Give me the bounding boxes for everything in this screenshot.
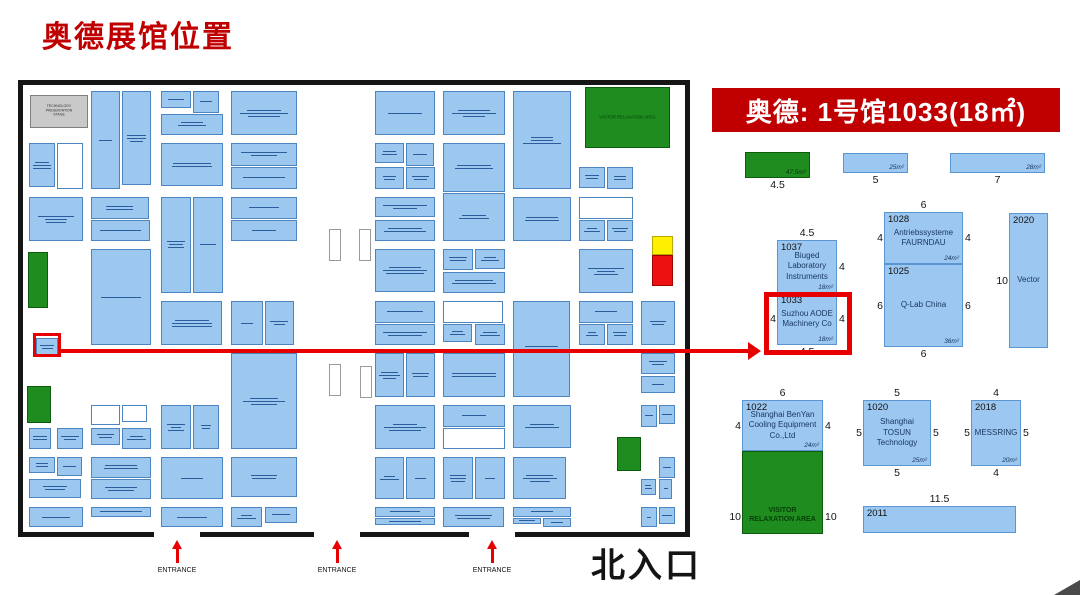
map-booth	[29, 197, 83, 241]
booth-2018: 2018MESSRING20m²4455	[971, 400, 1021, 466]
map-booth	[91, 91, 120, 189]
dim-top: 11.5	[930, 493, 950, 505]
map-booth	[641, 301, 675, 345]
dim-right: 5	[933, 427, 939, 439]
booth-name: Vector	[1010, 214, 1047, 347]
map-booth	[231, 197, 297, 219]
map-booth	[57, 428, 83, 450]
dim-right: 5	[1023, 427, 1029, 439]
booth-area: 36m²	[944, 338, 959, 345]
entrance-arrow-icon	[336, 548, 339, 563]
map-booth	[375, 301, 435, 323]
map-booth	[443, 301, 503, 323]
wall-gap	[469, 530, 515, 539]
map-booth	[443, 428, 505, 450]
technology-presentation-stage: TECHNOLOGY PRESENTATION STAGE	[30, 95, 88, 128]
pillar	[329, 364, 341, 396]
dim-bottom: 5	[894, 467, 900, 479]
map-booth	[375, 353, 404, 397]
entrance-label: ENTRANCE	[297, 567, 377, 574]
booth-number: 1022	[746, 402, 767, 413]
entrance-label: ENTRANCE	[137, 567, 217, 574]
map-booth	[641, 376, 675, 393]
dim-left: 5	[848, 427, 862, 439]
map-booth	[659, 405, 675, 424]
dim-bottom: 4	[993, 467, 999, 479]
map-booth	[91, 249, 151, 345]
booth-name: Q-Lab China	[885, 265, 962, 346]
page-title: 奥德展馆位置	[42, 12, 234, 56]
booth-number: 2018	[975, 402, 996, 413]
dim-top: 4	[993, 387, 999, 399]
booth-1037: 1037Biuged Laboratory Instruments18m²4.5…	[777, 240, 837, 293]
map-booth	[161, 457, 223, 499]
map-booth	[579, 220, 605, 242]
map-booth	[161, 405, 191, 449]
booth-2011: 201111.5	[863, 506, 1016, 533]
booth-area: 28m²	[1026, 164, 1041, 171]
dim-right: 4	[965, 232, 971, 244]
green-area-bottom-left	[27, 386, 51, 423]
pillar	[359, 229, 371, 261]
dim-top: 5	[894, 387, 900, 399]
map-booth	[91, 457, 151, 478]
map-booth	[161, 507, 223, 527]
map-booth	[443, 272, 505, 294]
locator-arrow-head-icon	[748, 342, 761, 360]
map-booth	[443, 457, 473, 499]
map-booth	[193, 405, 219, 449]
booth-area: 47.5m²	[786, 169, 806, 176]
dim-right: 10	[825, 511, 837, 523]
map-booth	[406, 143, 434, 166]
map-booth	[231, 457, 297, 497]
map-booth	[375, 249, 435, 292]
map-booth	[513, 197, 571, 241]
map-booth	[91, 428, 120, 445]
map-booth	[231, 220, 297, 242]
north-entrance-label: 北入口	[591, 538, 702, 587]
dim-right: 4	[839, 261, 845, 273]
map-booth	[231, 91, 297, 135]
map-booth	[122, 91, 151, 185]
detail-panel-header: 奥德: 1号馆1033(18㎡)	[712, 88, 1060, 132]
dim-right: 4	[825, 420, 831, 432]
entrance-arrow-icon	[176, 548, 179, 563]
map-booth	[513, 518, 541, 525]
map-booth	[122, 428, 151, 450]
map-booth	[543, 518, 571, 528]
map-booth	[443, 249, 473, 270]
map-booth	[161, 114, 223, 136]
map-booth	[91, 479, 151, 500]
map-booth	[443, 193, 505, 242]
map-booth	[29, 428, 51, 450]
map-booth	[265, 507, 297, 523]
map-booth	[375, 507, 435, 517]
map-booth	[641, 507, 657, 527]
booth-name: VISITOR RELAXATION AREA	[743, 452, 822, 533]
dim-bottom: 5	[873, 174, 879, 186]
map-booth	[231, 353, 297, 449]
booth-number: 1028	[888, 214, 909, 225]
map-booth	[161, 301, 222, 345]
booth-number: 2011	[867, 508, 887, 519]
dim-right: 6	[965, 300, 971, 312]
dim-left: 10	[727, 511, 741, 523]
map-booth	[161, 91, 191, 108]
map-booth	[406, 353, 435, 397]
map-booth	[265, 301, 294, 345]
map-booth	[443, 507, 504, 527]
entrance-label: ENTRANCE	[452, 567, 532, 574]
booth-area: 18m²	[818, 284, 833, 291]
dim-top: 6	[921, 199, 927, 211]
map-booth	[443, 405, 505, 427]
map-booth	[513, 405, 571, 448]
locator-arrow-line	[59, 349, 750, 353]
map-booth	[375, 197, 435, 217]
booth-area: 24m²	[804, 442, 819, 449]
map-booth	[91, 220, 150, 242]
map-booth	[443, 353, 505, 397]
map-booth	[579, 301, 633, 323]
dim-left: 4	[869, 232, 883, 244]
booth-green-top: 47.5m²4.5	[745, 152, 810, 178]
dim-bottom: 4.5	[770, 179, 785, 191]
map-booth	[607, 167, 633, 190]
map-booth	[231, 301, 263, 345]
map-booth	[29, 507, 83, 527]
map-booth	[513, 457, 566, 499]
yellow-marker	[652, 236, 673, 255]
visitor-relaxation-area-top: VISITOR RELAXATION AREA	[585, 87, 670, 148]
map-booth	[659, 457, 675, 478]
map-booth	[231, 507, 262, 527]
map-booth	[193, 197, 223, 293]
map-booth	[91, 197, 149, 219]
map-booth	[513, 91, 571, 189]
booth-area: 20m²	[1002, 457, 1017, 464]
green-area-left	[28, 252, 48, 308]
stage-label: TECHNOLOGY PRESENTATION STAGE	[43, 105, 75, 118]
booth-number: 2020	[1013, 215, 1034, 226]
map-booth	[443, 91, 505, 135]
booth-1025: 1025Q-Lab China36m²666	[884, 264, 963, 347]
map-booth	[406, 167, 435, 190]
map-booth	[375, 143, 404, 163]
aode-booth-highlight	[33, 333, 61, 357]
dim-top: 4.5	[800, 227, 815, 239]
red-marker	[652, 255, 673, 286]
dim-top: 6	[780, 387, 786, 399]
map-booth	[443, 324, 472, 342]
dim-left: 10	[994, 275, 1008, 287]
booth-number: 1020	[867, 402, 888, 413]
pillar	[329, 229, 341, 261]
map-booth	[91, 507, 151, 517]
map-booth	[57, 457, 82, 476]
map-booth	[29, 479, 81, 499]
main-floorplan: TECHNOLOGY PRESENTATION STAGE VISITOR RE…	[18, 80, 690, 537]
map-booth	[231, 143, 297, 166]
map-booth	[579, 197, 633, 219]
relaxation-label: VISITOR RELAXATION AREA	[599, 115, 656, 119]
pillar	[360, 366, 372, 398]
slide-root: 奥德展馆位置 TECHNOLOGY PRESENTATION STAGE VIS…	[0, 0, 1080, 595]
booth-strip-28: 28m²7	[950, 153, 1045, 173]
booth-1028: 1028Antriebssysteme FAURNDAU24m²644	[884, 212, 963, 264]
map-booth	[475, 249, 505, 269]
map-booth	[641, 353, 675, 374]
map-booth	[91, 405, 120, 425]
map-booth	[375, 324, 435, 346]
wall-gap	[154, 530, 200, 539]
booth-2020: 2020Vector10	[1009, 213, 1048, 348]
map-booth	[475, 324, 505, 346]
booth-1020: 1020Shanghai TOSUN Technology25m²5555	[863, 400, 931, 466]
map-booth	[161, 197, 191, 293]
map-booth	[375, 167, 404, 190]
page-curl-icon	[1054, 580, 1080, 595]
booth-area: 24m²	[944, 255, 959, 262]
map-booth	[607, 220, 633, 242]
dim-left: 6	[869, 300, 883, 312]
map-booth	[29, 143, 55, 187]
green-area-bottom-right	[617, 437, 641, 471]
wall-gap	[314, 530, 360, 539]
booth-visitor-area: VISITOR RELAXATION AREA1010	[742, 451, 823, 534]
map-booth	[641, 479, 656, 496]
dim-left: 5	[956, 427, 970, 439]
map-booth	[641, 405, 657, 427]
map-booth	[375, 518, 435, 525]
map-booth	[375, 457, 404, 499]
booth-area: 25m²	[912, 457, 927, 464]
map-booth	[375, 91, 435, 135]
map-booth	[122, 405, 147, 422]
dim-bottom: 7	[995, 174, 1001, 186]
detail-booth-highlight	[764, 292, 852, 355]
map-booth	[57, 143, 83, 189]
booth-1022: 1022Shanghai BenYan Cooling Equipment Co…	[742, 400, 823, 451]
dim-left: 4	[727, 420, 741, 432]
map-booth	[579, 167, 605, 188]
map-booth	[513, 507, 571, 517]
map-booth	[579, 249, 633, 293]
booth-strip-25: 25m²5	[843, 153, 908, 173]
map-booth	[443, 143, 505, 192]
entrance-arrow-icon	[491, 548, 494, 563]
map-booth	[579, 324, 605, 346]
map-booth	[375, 405, 435, 449]
map-booth	[29, 457, 55, 473]
map-booth	[161, 143, 223, 186]
map-booth	[193, 91, 219, 113]
booth-number: 1025	[888, 266, 909, 277]
dim-bottom: 6	[921, 348, 927, 360]
map-booth	[406, 457, 435, 499]
map-booth	[375, 220, 435, 242]
map-booth	[231, 167, 297, 190]
map-booth	[475, 457, 505, 499]
booth-area: 25m²	[889, 164, 904, 171]
map-booth	[659, 507, 675, 524]
map-booth	[659, 479, 672, 500]
map-booth	[607, 324, 633, 346]
booth-number: 1037	[781, 242, 802, 253]
